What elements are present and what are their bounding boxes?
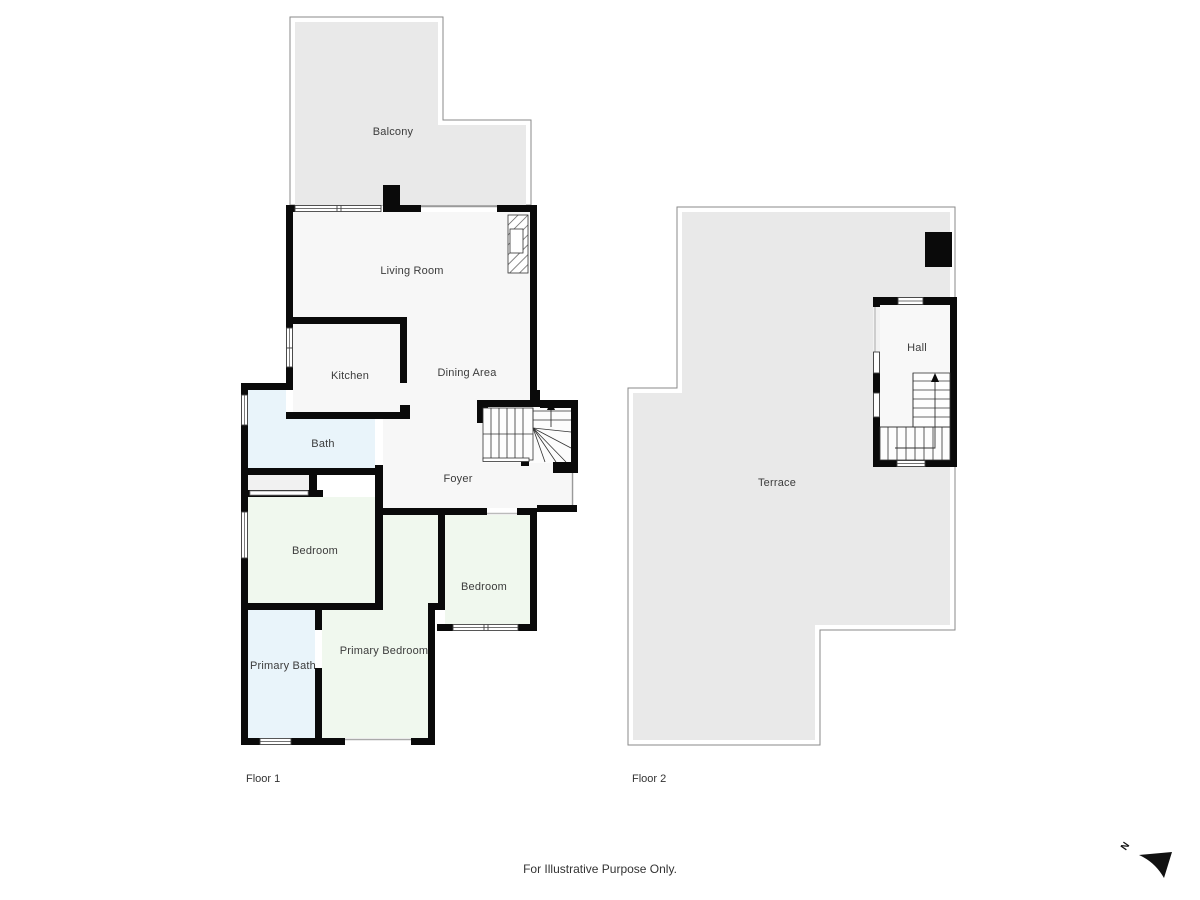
hall-label: Hall: [907, 342, 927, 354]
kitchen-label: Kitchen: [331, 370, 369, 382]
chimney-floor1: [383, 185, 400, 212]
dining-area-label: Dining Area: [437, 367, 496, 379]
bedroom1-label: Bedroom: [292, 545, 338, 557]
closet-door: [250, 491, 308, 495]
living-room-window: [295, 206, 381, 212]
room-bedroom2-fill: [445, 515, 530, 624]
floor2-label: Floor 2: [632, 773, 666, 785]
room-hall: [873, 297, 957, 467]
room-terrace: [628, 207, 955, 745]
terrace-label: Terrace: [758, 477, 796, 489]
bedroom1-window: [242, 512, 248, 558]
bedroom2-window: [453, 625, 518, 631]
bedroom2-label: Bedroom: [461, 581, 507, 593]
bath-label: Bath: [311, 438, 334, 450]
floorplan-page: Balcony Living Room Kitchen Dining Area …: [0, 0, 1200, 900]
foyer-label: Foyer: [443, 473, 472, 485]
closet-fill: [248, 475, 309, 492]
floor2-plan: [628, 207, 957, 745]
fireplace-icon: [508, 215, 528, 273]
room-balcony: [290, 17, 531, 205]
balcony-label: Balcony: [373, 126, 414, 138]
bath-window: [242, 395, 248, 425]
room-primary-bedroom-fill: [322, 610, 428, 738]
room-primary-bath-fill: [248, 610, 315, 738]
primary-bedroom-label: Primary Bedroom: [340, 645, 429, 657]
kitchen-window: [287, 328, 293, 367]
living-room-label: Living Room: [380, 265, 443, 277]
primary-bath-label: Primary Bath: [250, 660, 316, 672]
north-arrow-icon: [1139, 852, 1172, 878]
floorplan-drawing: [0, 0, 1200, 900]
disclaimer-text: For Illustrative Purpose Only.: [523, 862, 677, 876]
primary-bath-window: [260, 739, 291, 745]
floor1-label: Floor 1: [246, 773, 280, 785]
corridor-fill: [383, 515, 438, 610]
chimney-floor2: [925, 232, 952, 267]
